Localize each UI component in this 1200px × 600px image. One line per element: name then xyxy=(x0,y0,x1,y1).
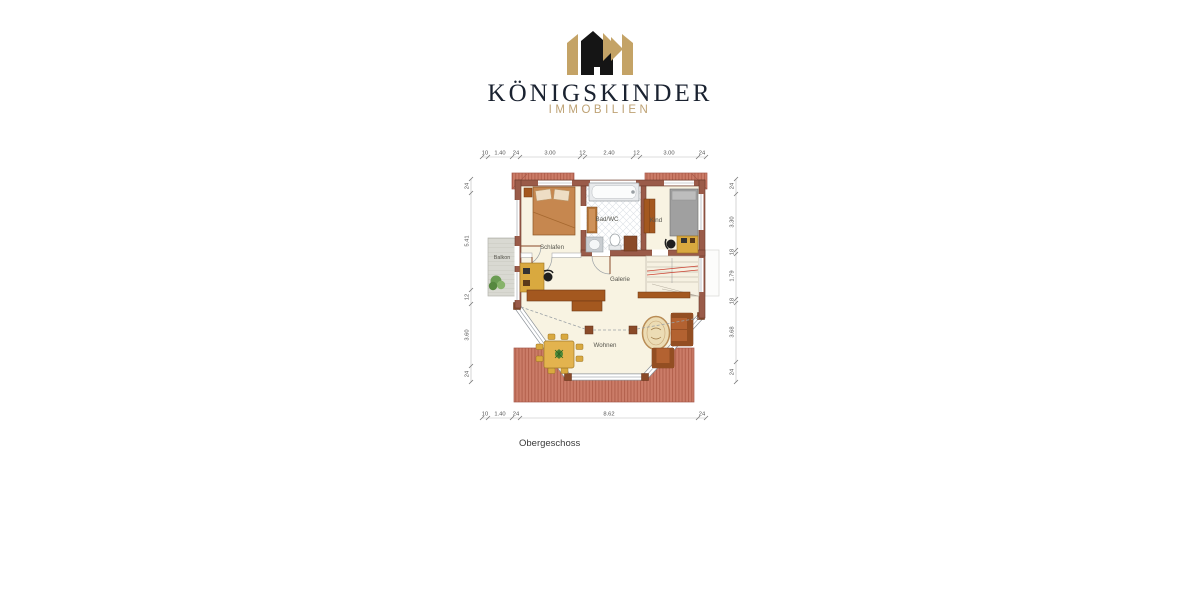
staircase xyxy=(646,256,699,296)
bath-cabinet xyxy=(624,236,637,251)
page: KÖNIGSKINDER IMMOBILIEN xyxy=(0,0,1200,600)
dim-top-5: 2.40 xyxy=(603,151,614,157)
room-label-wohnen: Wohnen xyxy=(594,342,617,349)
dimension-chain-top: 10 1.40 24 3.00 12 2.40 12 3.00 24 xyxy=(480,151,708,160)
gallery-railing xyxy=(638,292,690,298)
dim-bottom-1: 1.40 xyxy=(494,412,505,418)
armchair xyxy=(652,348,674,368)
dim-bottom-0: 10 xyxy=(482,412,488,418)
room-label-schlafen: Schlafen xyxy=(540,244,565,251)
bathtub xyxy=(589,183,639,201)
room-label-kind: Kind xyxy=(650,217,663,224)
dim-top-3: 3.00 xyxy=(544,151,555,157)
dim-top-1: 1.40 xyxy=(494,151,505,157)
toilet xyxy=(609,234,621,250)
dim-top-6: 12 xyxy=(633,151,639,157)
dimension-chain-right: 24 3.30 18 1.79 18 3.68 24 xyxy=(730,177,739,384)
dim-left-0: 24 xyxy=(465,182,471,189)
sofa xyxy=(671,313,693,346)
rug xyxy=(643,317,670,350)
balcony xyxy=(488,238,517,296)
dimension-chain-bottom: 10 1.40 24 8.62 24 xyxy=(480,412,708,421)
wardrobe-kind xyxy=(644,199,655,233)
dim-bottom-4: 24 xyxy=(699,412,706,418)
dim-right-2: 18 xyxy=(730,249,736,255)
dimension-chain-left: 24 5.41 12 3.60 24 xyxy=(465,177,474,384)
dim-top-2: 24 xyxy=(513,151,520,157)
dim-top-0: 10 xyxy=(482,151,488,157)
floor-plan: 10 1.40 24 3.00 12 2.40 12 3.00 24 10 1.… xyxy=(0,0,1200,600)
dim-left-4: 24 xyxy=(465,370,471,377)
dim-right-1: 3.30 xyxy=(730,216,736,227)
room-label-bad: Bad/WC xyxy=(595,216,619,223)
dim-top-4: 12 xyxy=(579,151,585,157)
sink xyxy=(586,237,603,252)
dim-right-0: 24 xyxy=(730,182,736,189)
dim-top-8: 24 xyxy=(699,151,706,157)
dim-right-5: 3.68 xyxy=(730,326,736,337)
dim-right-6: 24 xyxy=(730,368,736,375)
bed-kind xyxy=(670,189,698,236)
dim-left-2: 12 xyxy=(465,294,471,300)
dim-bottom-2: 24 xyxy=(513,412,520,418)
dim-right-4: 18 xyxy=(730,298,736,304)
dim-left-3: 3.60 xyxy=(465,329,471,340)
dim-bottom-3: 8.62 xyxy=(603,412,614,418)
room-label-galerie: Galerie xyxy=(610,276,631,283)
dim-right-3: 1.79 xyxy=(730,270,736,281)
plan-title: Obergeschoss xyxy=(519,438,581,449)
dim-left-1: 5.41 xyxy=(465,235,471,246)
room-label-balkon: Balkon xyxy=(494,255,510,261)
dim-top-7: 3.00 xyxy=(663,151,674,157)
stair-recess xyxy=(705,250,719,296)
